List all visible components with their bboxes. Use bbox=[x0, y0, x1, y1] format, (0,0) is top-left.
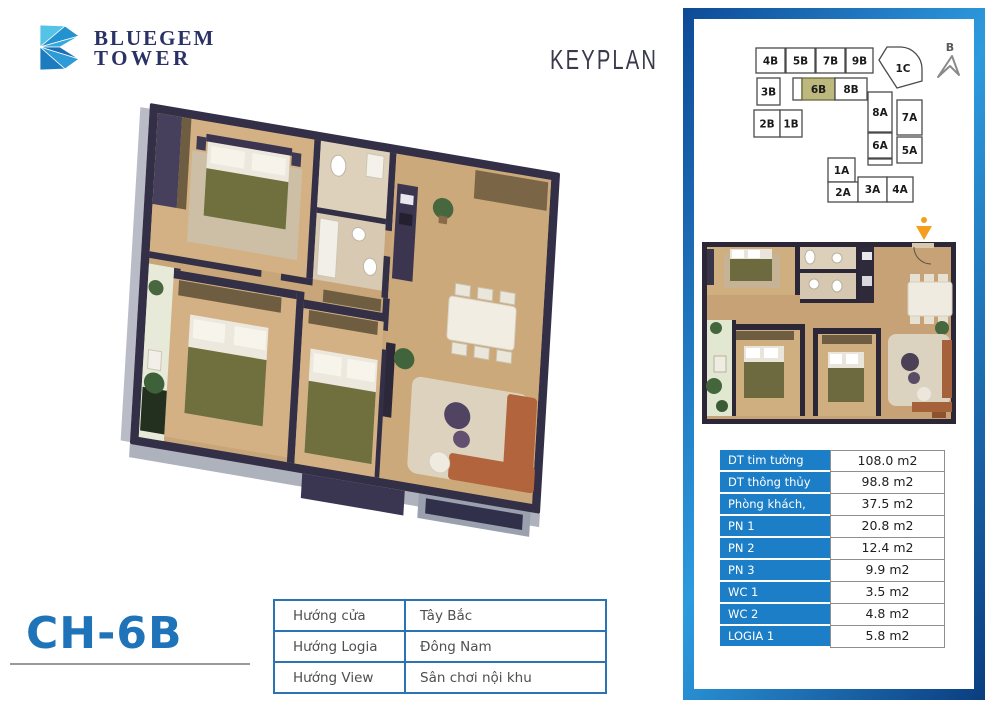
bedroom-1 bbox=[150, 113, 315, 278]
keyplan-label: 1B bbox=[783, 119, 798, 131]
area-value: 108.0 m2 bbox=[830, 450, 945, 472]
keyplan-heading: KEYPLAN bbox=[550, 44, 658, 76]
area-row: PN 1 20.8 m2 bbox=[720, 516, 945, 538]
keyplan-diagram: 4B 5B 7B 9B 1C 3B 6B 8B 2B 1B 8A 7A 6A 5… bbox=[700, 30, 970, 215]
area-table: DT tim tường 108.0 m2 DT thông thủy 98.8… bbox=[720, 450, 945, 648]
keyplan-label: 5A bbox=[902, 145, 918, 157]
area-row: PN 3 9.9 m2 bbox=[720, 560, 945, 582]
bedroom-2 bbox=[164, 270, 297, 458]
right-panel: 4B 5B 7B 9B 1C 3B 6B 8B 2B 1B 8A 7A 6A 5… bbox=[683, 8, 985, 700]
area-value: 20.8 m2 bbox=[830, 516, 945, 538]
floorplan-3d bbox=[40, 85, 660, 555]
brand-line1: BLUEGEM bbox=[94, 28, 215, 48]
kitchen-2d bbox=[860, 247, 874, 303]
area-label: PN 3 bbox=[720, 560, 830, 582]
area-value: 98.8 m2 bbox=[830, 472, 945, 494]
floorplan-2d bbox=[702, 216, 958, 428]
area-row: WC 2 4.8 m2 bbox=[720, 604, 945, 626]
area-row: WC 1 3.5 m2 bbox=[720, 582, 945, 604]
area-value: 4.8 m2 bbox=[830, 604, 945, 626]
living-2d bbox=[888, 321, 952, 418]
area-row: Phòng khách, bếp 37.5 m2 bbox=[720, 494, 945, 516]
area-value: 5.8 m2 bbox=[830, 626, 945, 648]
orientation-row: Hướng cửa Tây Bắc bbox=[274, 600, 606, 631]
keyplan-label: 6A bbox=[872, 140, 888, 152]
brand-logo: BLUEGEM TOWER bbox=[38, 24, 215, 72]
wall bbox=[795, 247, 800, 295]
keyplan-label: 1A bbox=[834, 165, 850, 177]
orientation-row: Hướng Logia Đông Nam bbox=[274, 631, 606, 662]
keyplan-label: 6B bbox=[811, 84, 826, 96]
orientation-value: Tây Bắc bbox=[405, 600, 606, 631]
area-label: DT thông thủy bbox=[720, 472, 830, 494]
keyplan-label: 8A bbox=[872, 107, 888, 119]
area-row: LOGIA 1 5.8 m2 bbox=[720, 626, 945, 648]
right-panel-inner: 4B 5B 7B 9B 1C 3B 6B 8B 2B 1B 8A 7A 6A 5… bbox=[694, 19, 974, 689]
area-row: DT thông thủy 98.8 m2 bbox=[720, 472, 945, 494]
unit-underline bbox=[10, 663, 250, 665]
orientation-label: Hướng cửa bbox=[274, 600, 405, 631]
bedroom-2-2d bbox=[732, 324, 805, 416]
keyplan-label: 7A bbox=[902, 112, 918, 124]
keyplan-label: 2B bbox=[759, 119, 774, 131]
unit-code: CH-6B bbox=[26, 608, 183, 659]
area-value: 3.5 m2 bbox=[830, 582, 945, 604]
page: BLUEGEM TOWER KEYPLAN bbox=[0, 0, 1000, 707]
keyplan-label: 1C bbox=[895, 63, 910, 75]
keyplan-label: 5B bbox=[793, 56, 808, 68]
orientation-value: Sân chơi nội khu bbox=[405, 662, 606, 693]
entrance-arrow-icon bbox=[916, 217, 932, 240]
brand-line2: TOWER bbox=[94, 48, 215, 68]
compass-north-icon: B bbox=[938, 41, 959, 77]
area-label: PN 2 bbox=[720, 538, 830, 560]
orientation-value: Đông Nam bbox=[405, 631, 606, 662]
keyplan-cell-blank bbox=[868, 159, 892, 165]
keyplan-label: 4B bbox=[763, 56, 778, 68]
brand-name: BLUEGEM TOWER bbox=[94, 28, 215, 68]
keyplan-cell-blank bbox=[793, 78, 802, 100]
dining-2d bbox=[908, 274, 952, 324]
area-row: PN 2 12.4 m2 bbox=[720, 538, 945, 560]
keyplan-label: 4A bbox=[892, 184, 908, 196]
orientation-row: Hướng View Sân chơi nội khu bbox=[274, 662, 606, 693]
area-value: 12.4 m2 bbox=[830, 538, 945, 560]
compass-arrow bbox=[938, 56, 959, 77]
area-label: PN 1 bbox=[720, 516, 830, 538]
area-label: WC 2 bbox=[720, 604, 830, 626]
keyplan-label: 3A bbox=[865, 184, 881, 196]
keyplan-label: 8B bbox=[843, 84, 858, 96]
orientation-table: Hướng cửa Tây Bắc Hướng Logia Đông Nam H… bbox=[273, 599, 607, 694]
wc-2 bbox=[313, 213, 386, 291]
bedroom-3-2d bbox=[813, 328, 881, 416]
keyplan-label: 3B bbox=[761, 87, 776, 99]
wc-1 bbox=[317, 141, 390, 225]
gem-logo-icon bbox=[38, 24, 82, 72]
bedroom-3 bbox=[294, 300, 384, 478]
bathrooms-2d bbox=[800, 247, 860, 303]
orientation-label: Hướng Logia bbox=[274, 631, 405, 662]
keyplan-label: 9B bbox=[852, 56, 867, 68]
area-label: DT tim tường bbox=[720, 450, 830, 472]
compass-label: B bbox=[946, 41, 954, 54]
orientation-label: Hướng View bbox=[274, 662, 405, 693]
area-label: Phòng khách, bếp bbox=[720, 494, 830, 516]
area-value: 37.5 m2 bbox=[830, 494, 945, 516]
keyplan-label: 7B bbox=[823, 56, 838, 68]
keyplan-label: 2A bbox=[835, 187, 851, 199]
logia-2d bbox=[706, 320, 736, 416]
living-kitchen bbox=[377, 154, 552, 504]
area-label: WC 1 bbox=[720, 582, 830, 604]
bedroom-1-2d bbox=[707, 247, 795, 295]
area-row: DT tim tường 108.0 m2 bbox=[720, 450, 945, 472]
area-label: LOGIA 1 bbox=[720, 626, 830, 648]
area-value: 9.9 m2 bbox=[830, 560, 945, 582]
entrance-gap bbox=[912, 243, 934, 248]
